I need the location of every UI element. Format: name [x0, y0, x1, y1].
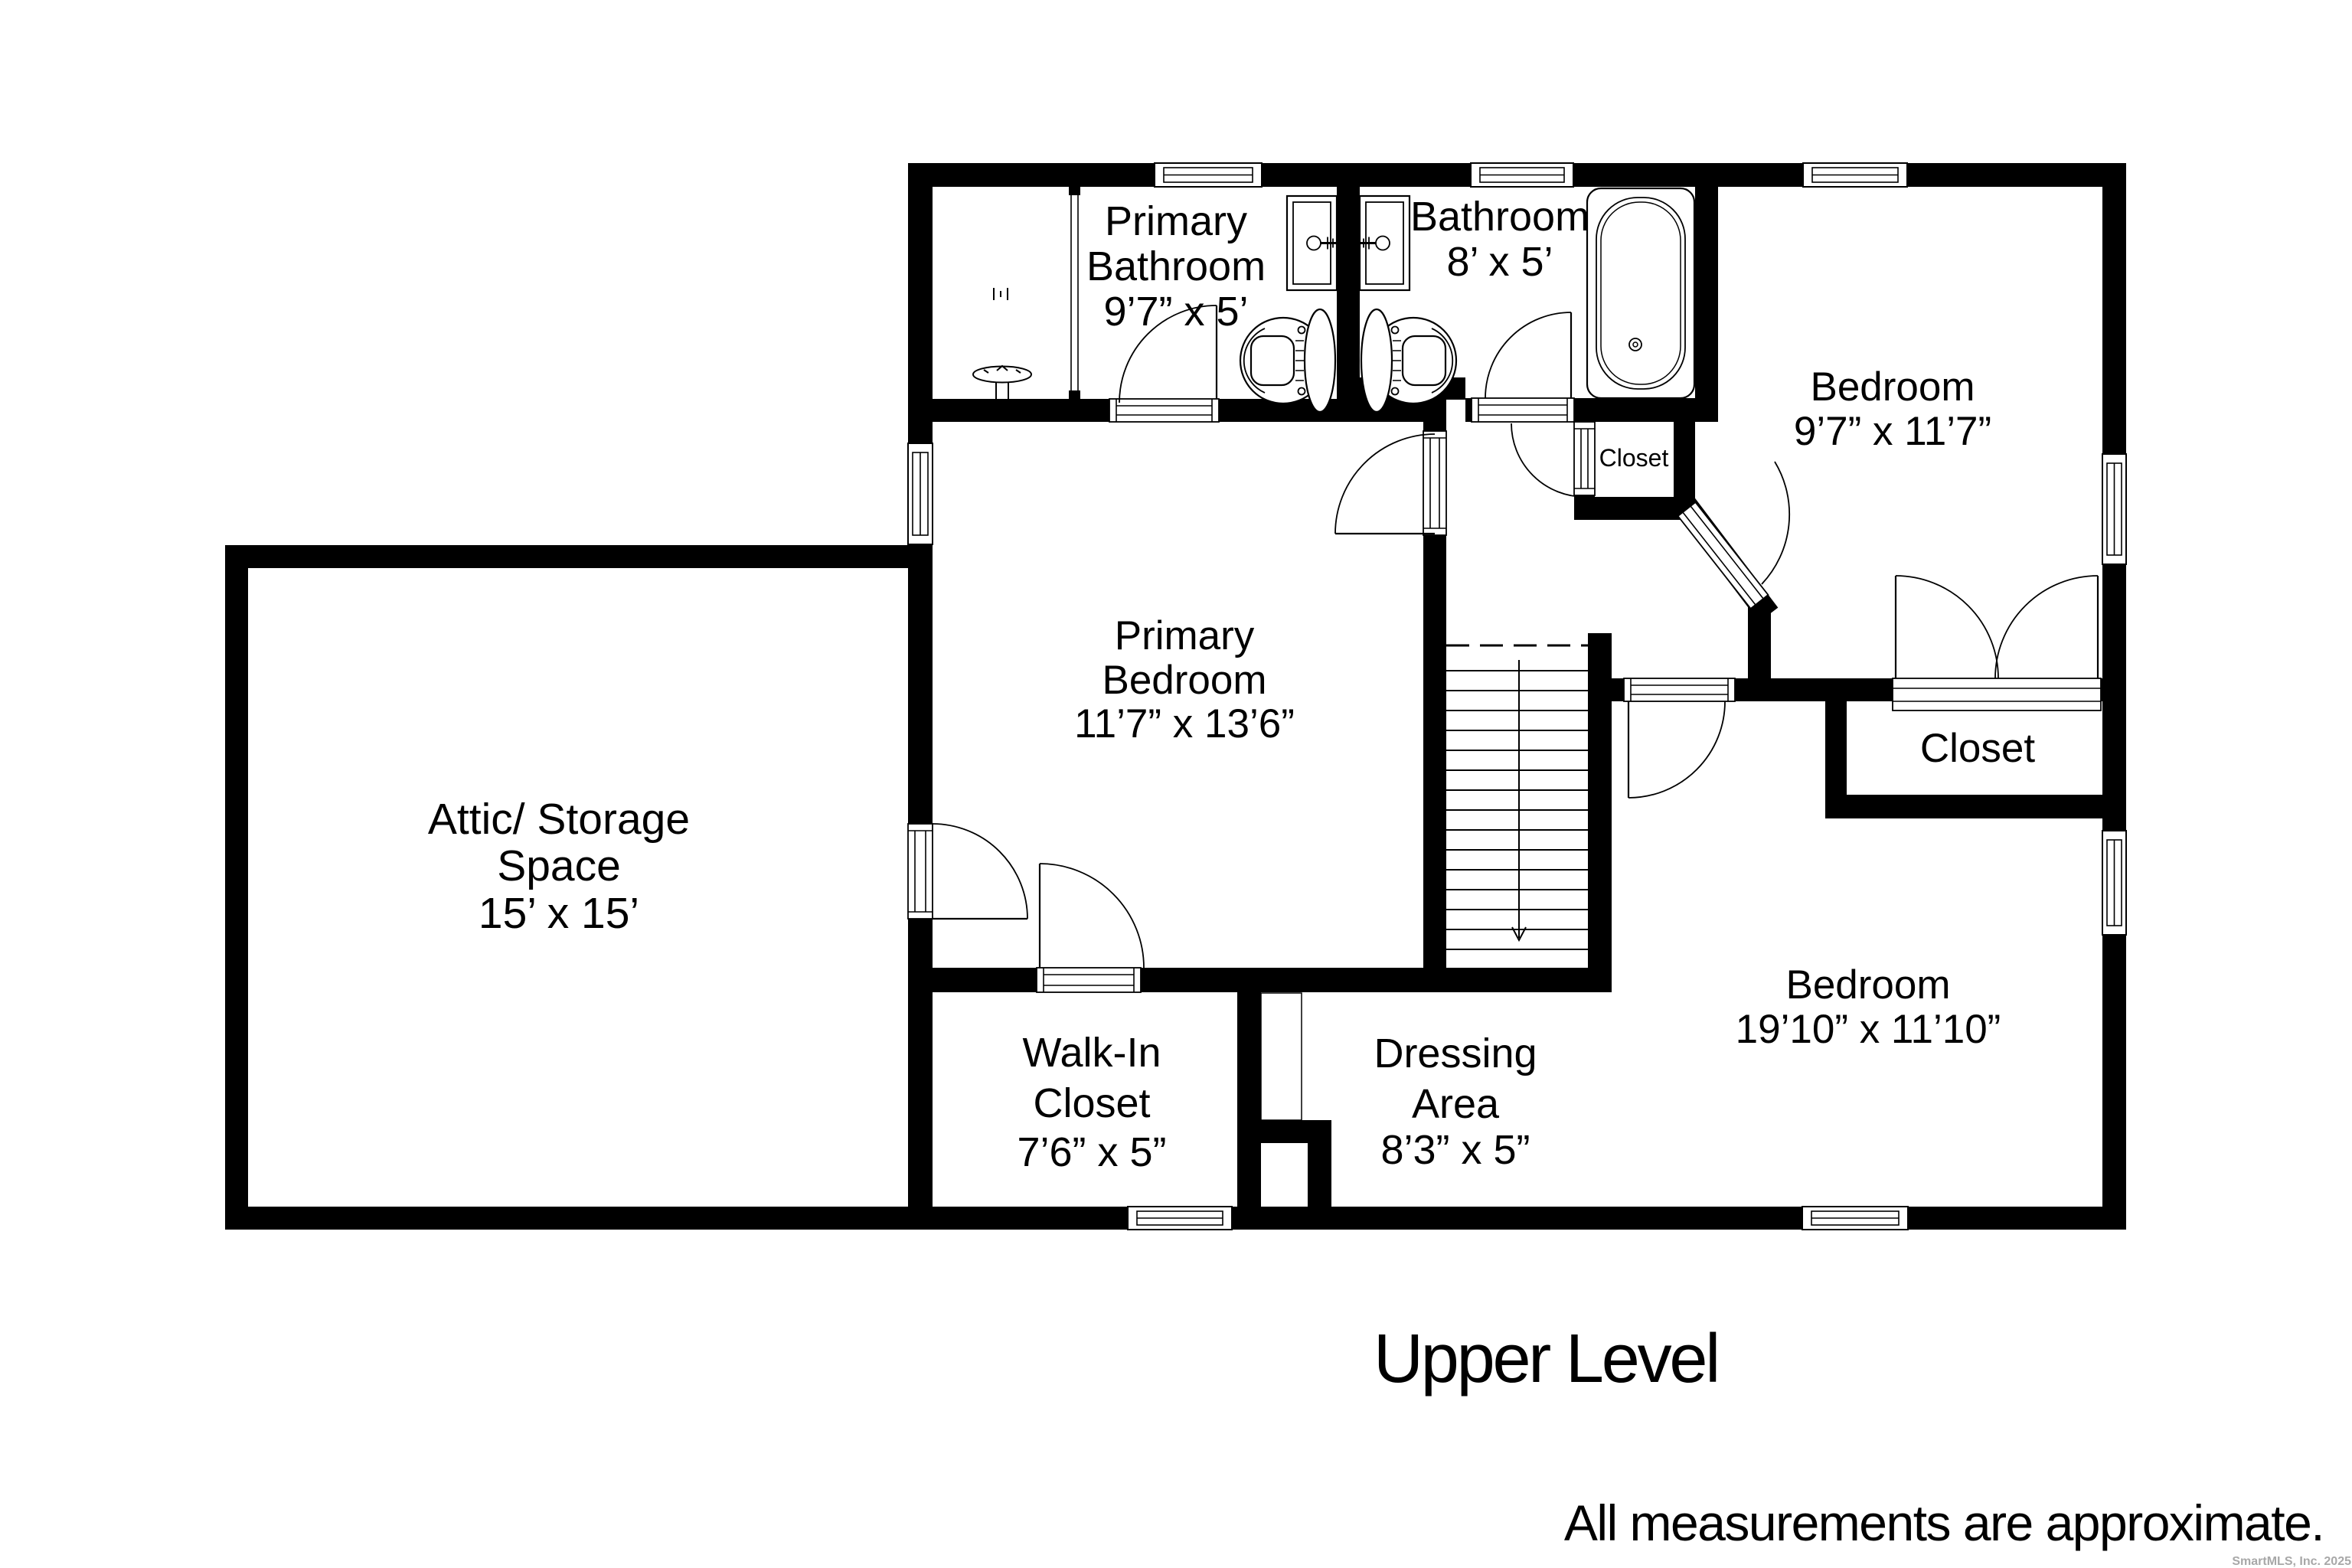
svg-text:Bedroom: Bedroom	[1102, 658, 1266, 703]
svg-text:Closet: Closet	[1599, 444, 1669, 472]
svg-text:9’7” x 11’7”: 9’7” x 11’7”	[1794, 409, 1991, 454]
svg-text:Bedroom: Bedroom	[1810, 364, 1975, 410]
svg-text:Upper Level: Upper Level	[1374, 1321, 1718, 1397]
svg-text:8’3” x 5”: 8’3” x 5”	[1380, 1127, 1530, 1173]
svg-text:Bedroom: Bedroom	[1785, 962, 1950, 1008]
svg-text:11’7” x 13’6”: 11’7” x 13’6”	[1074, 701, 1295, 746]
svg-text:7’6” x 5”: 7’6” x 5”	[1017, 1129, 1166, 1175]
svg-text:15’ x 15’: 15’ x 15’	[479, 889, 639, 938]
svg-text:19’10” x 11’10”: 19’10” x 11’10”	[1736, 1007, 2001, 1052]
svg-text:Primary: Primary	[1105, 198, 1247, 244]
svg-text:8’ x 5’: 8’ x 5’	[1446, 239, 1553, 285]
svg-text:Walk-In: Walk-In	[1022, 1030, 1161, 1076]
svg-text:Bathroom: Bathroom	[1086, 243, 1266, 289]
svg-text:All measurements are approxima: All measurements are approximate.	[1564, 1494, 2324, 1551]
svg-text:Area: Area	[1412, 1081, 1500, 1127]
svg-text:Space: Space	[497, 841, 621, 890]
svg-text:Attic/ Storage: Attic/ Storage	[428, 795, 690, 844]
svg-text:Primary: Primary	[1115, 613, 1255, 658]
svg-text:Bathroom: Bathroom	[1410, 194, 1589, 240]
svg-text:Closet: Closet	[1920, 726, 2036, 771]
svg-text:9’7” x 5’: 9’7” x 5’	[1103, 289, 1248, 335]
svg-text:Closet: Closet	[1033, 1080, 1150, 1126]
svg-text:SmartMLS, Inc. 2025: SmartMLS, Inc. 2025	[2232, 1555, 2351, 1568]
svg-text:Dressing: Dressing	[1374, 1031, 1537, 1076]
